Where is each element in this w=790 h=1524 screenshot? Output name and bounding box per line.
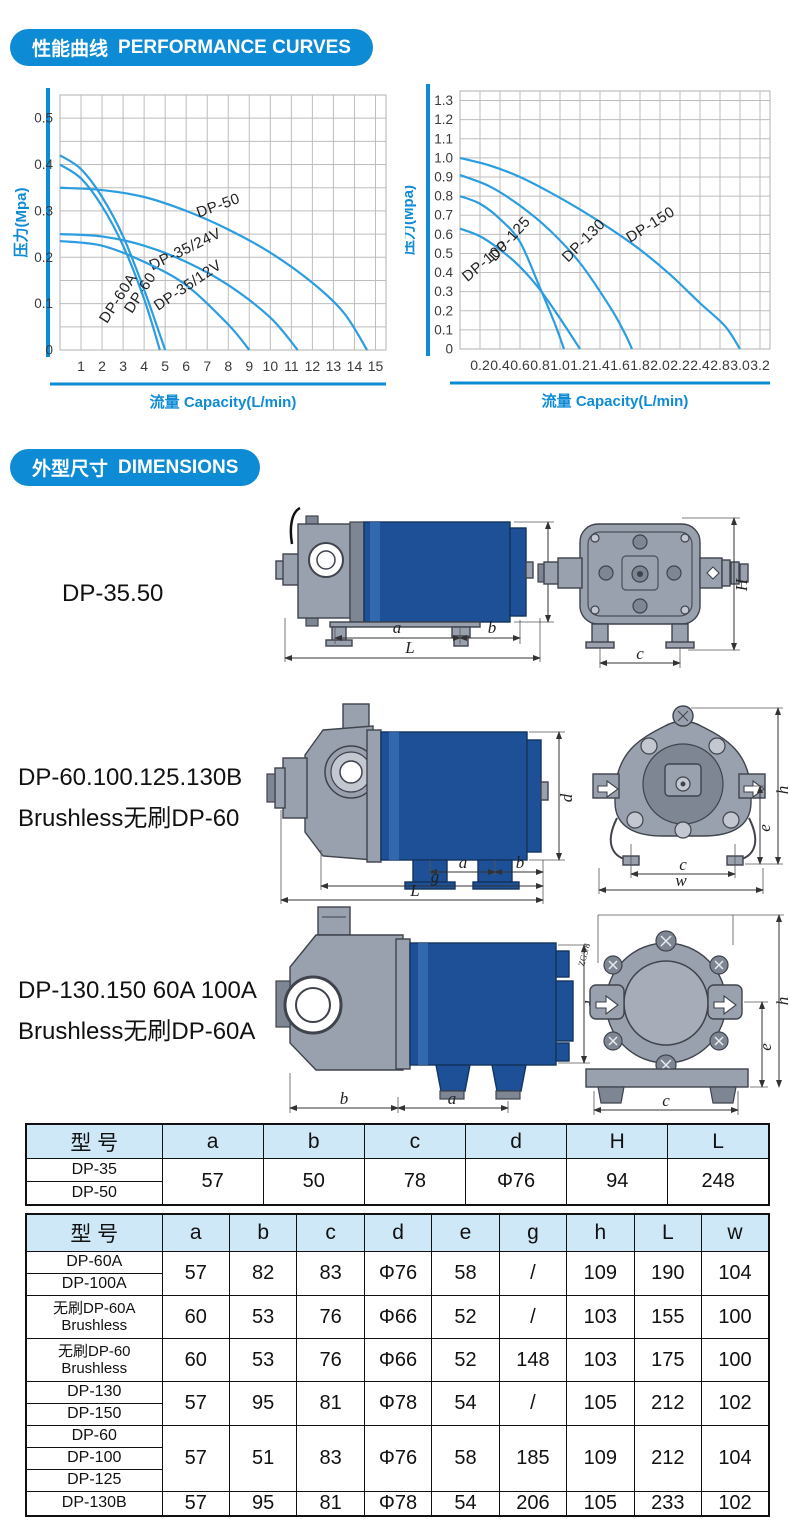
performance-curves-header: 性能曲线 PERFORMANCE CURVES xyxy=(10,29,373,66)
dim-label-c: c xyxy=(662,1091,670,1110)
model-cell: DP-100A xyxy=(26,1274,162,1296)
value-cell: 206 xyxy=(499,1492,566,1517)
x-tick-label: 2.2 xyxy=(670,357,690,373)
value-cell: 175 xyxy=(634,1339,701,1382)
model-cell: 无刷DP-60A Brushless xyxy=(26,1296,162,1339)
dim-label-h: h xyxy=(773,786,790,795)
pump-model-label: DP-60.100.125.130BBrushless无刷DP-60 xyxy=(18,758,242,840)
y-tick-label: 0.3 xyxy=(434,284,453,299)
dim-label-g: g xyxy=(431,867,440,886)
x-tick-label: 8 xyxy=(224,358,232,374)
x-tick-label: 5 xyxy=(161,358,169,374)
column-header: d xyxy=(364,1214,431,1252)
curve-label: DP-130 xyxy=(559,216,609,266)
pump-drawing-side-and-front: d b a ZG3/8 c e h xyxy=(268,905,790,1117)
pump-diagram-dp60-family: DP-60.100.125.130BBrushless无刷DP-60 d a b… xyxy=(0,700,790,910)
pump-model-label: DP-35.50 xyxy=(62,574,163,615)
product-spec-page: { "page":{ "accent_blue":"#0e8bd5", "cur… xyxy=(0,0,790,1518)
motor-body xyxy=(410,943,556,1065)
column-header: w xyxy=(702,1214,770,1252)
dim-label-d: d xyxy=(557,793,576,802)
value-cell: 51 xyxy=(229,1426,296,1492)
x-tick-label: 1.4 xyxy=(590,357,610,373)
x-tick-label: 13 xyxy=(326,358,342,374)
x-tick-label: 0.2 xyxy=(470,357,490,373)
model-cell: DP-100 xyxy=(26,1448,162,1470)
x-axis-title: 流量 Capacity(L/min) xyxy=(150,393,297,411)
y-tick-label: 0.5 xyxy=(34,111,53,126)
x-tick-label: 14 xyxy=(347,358,363,374)
model-cell: DP-35 xyxy=(26,1159,162,1182)
curve-label: DP-100 xyxy=(459,238,511,286)
value-cell: 233 xyxy=(634,1492,701,1517)
mounting-foot xyxy=(436,1065,470,1091)
y-tick-label: 0.8 xyxy=(434,189,453,204)
x-tick-label: 12 xyxy=(305,358,321,374)
value-cell: Φ76 xyxy=(465,1159,566,1206)
x-tick-label: 15 xyxy=(368,358,384,374)
dim-label-e: e xyxy=(755,824,774,832)
value-cell: 82 xyxy=(229,1252,296,1296)
value-cell: / xyxy=(499,1296,566,1339)
x-tick-label: 1.2 xyxy=(570,357,590,373)
value-cell: 57 xyxy=(162,1252,229,1296)
header-title-cn: 性能曲线 xyxy=(32,34,108,61)
value-cell: 109 xyxy=(567,1252,634,1296)
value-cell: 248 xyxy=(668,1159,769,1206)
model-cell: 无刷DP-60 Brushless xyxy=(26,1339,162,1382)
value-cell: 95 xyxy=(229,1492,296,1517)
x-tick-label: 6 xyxy=(182,358,190,374)
dimensions-table-dp35-50: 型 号abcdHLDP-35575078Φ7694248DP-50 xyxy=(25,1123,770,1206)
value-cell: 100 xyxy=(702,1339,770,1382)
y-tick-label: 0.2 xyxy=(434,303,453,318)
y-tick-label: 0 xyxy=(45,343,53,358)
y-tick-label: 0.4 xyxy=(434,265,453,280)
column-header: h xyxy=(567,1214,634,1252)
value-cell: 109 xyxy=(567,1426,634,1492)
x-tick-label: 11 xyxy=(284,358,299,374)
x-tick-label: 1.6 xyxy=(610,357,630,373)
column-header: 型 号 xyxy=(26,1214,162,1252)
value-cell: 52 xyxy=(432,1339,499,1382)
y-tick-label: 1.0 xyxy=(434,150,453,165)
pump-model-label: DP-130.150 60A 100ABrushless无刷DP-60A xyxy=(18,971,257,1053)
pressure-capacity-chart-small-pumps: 压力(Mpa)00.10.20.30.40.512345678910111213… xyxy=(12,75,402,422)
value-cell: 54 xyxy=(432,1382,499,1426)
column-header: H xyxy=(567,1124,668,1159)
model-cell: DP-50 xyxy=(26,1182,162,1206)
value-cell: Φ78 xyxy=(364,1382,431,1426)
value-cell: 53 xyxy=(229,1296,296,1339)
y-tick-label: 0.2 xyxy=(34,250,53,265)
dim-label-H: H xyxy=(732,577,751,592)
pump-diagram-dp130-150-family: DP-130.150 60A 100ABrushless无刷DP-60A d b… xyxy=(0,905,790,1120)
dim-label-c: c xyxy=(636,644,644,663)
y-tick-label: 0.1 xyxy=(34,296,53,311)
y-tick-label: 0.7 xyxy=(434,208,453,223)
x-tick-label: 0.8 xyxy=(530,357,550,373)
value-cell: Φ66 xyxy=(364,1339,431,1382)
column-header: b xyxy=(229,1214,296,1252)
y-axis-title: 压力(Mpa) xyxy=(405,185,417,255)
y-tick-label: 0.5 xyxy=(434,246,453,261)
x-tick-label: 1.0 xyxy=(550,357,570,373)
dimension-tables: 型 号abcdHLDP-35575078Φ7694248DP-50 型 号abc… xyxy=(25,1123,770,1524)
y-tick-label: 1.3 xyxy=(434,93,453,108)
column-header: L xyxy=(668,1124,769,1159)
value-cell: 52 xyxy=(432,1296,499,1339)
value-cell: 81 xyxy=(297,1492,364,1517)
dim-label-L: L xyxy=(404,638,414,657)
x-tick-label: 2.8 xyxy=(710,357,730,373)
y-tick-label: 0.6 xyxy=(434,227,453,242)
value-cell: 212 xyxy=(634,1426,701,1492)
dim-label-L: L xyxy=(409,881,419,900)
value-cell: 100 xyxy=(702,1296,770,1339)
curve-label: DP-150 xyxy=(623,203,678,246)
y-tick-label: 0.9 xyxy=(434,170,453,185)
pump-drawing-side-and-front: d a b g L c w e xyxy=(263,700,790,905)
x-tick-label: 0.6 xyxy=(510,357,530,373)
value-cell: 148 xyxy=(499,1339,566,1382)
motor-body xyxy=(364,522,510,622)
value-cell: 185 xyxy=(499,1426,566,1492)
value-cell: 76 xyxy=(297,1339,364,1382)
value-cell: 104 xyxy=(702,1426,770,1492)
model-cell: DP-60A xyxy=(26,1252,162,1274)
column-header: c xyxy=(364,1124,465,1159)
x-tick-label: 3.0 xyxy=(730,357,750,373)
header-title-en: PERFORMANCE CURVES xyxy=(118,37,351,59)
value-cell: 95 xyxy=(229,1382,296,1426)
value-cell: 105 xyxy=(567,1382,634,1426)
y-tick-label: 0 xyxy=(445,342,453,357)
dimensions-table-dp60-family: 型 号abcdeghLwDP-60A578283Φ7658/109190104D… xyxy=(25,1213,770,1517)
value-cell: 58 xyxy=(432,1252,499,1296)
x-tick-label: 1 xyxy=(77,358,85,374)
value-cell: 60 xyxy=(162,1296,229,1339)
value-cell: 94 xyxy=(567,1159,668,1206)
y-tick-label: 0.3 xyxy=(34,203,53,218)
model-cell: DP-130B xyxy=(26,1492,162,1517)
column-header: 型 号 xyxy=(26,1124,162,1159)
curve-label: DP-50 xyxy=(194,190,242,221)
value-cell: 102 xyxy=(702,1492,770,1517)
dim-label-b: b xyxy=(516,853,525,872)
x-tick-label: 7 xyxy=(203,358,211,374)
model-cell: DP-130 xyxy=(26,1382,162,1404)
y-tick-label: 0.4 xyxy=(34,157,53,172)
column-header: e xyxy=(432,1214,499,1252)
value-cell: 105 xyxy=(567,1492,634,1517)
value-cell: 190 xyxy=(634,1252,701,1296)
value-cell: 83 xyxy=(297,1252,364,1296)
mounting-foot xyxy=(492,1065,526,1091)
column-header: d xyxy=(465,1124,566,1159)
x-tick-label: 0.4 xyxy=(490,357,510,373)
value-cell: 155 xyxy=(634,1296,701,1339)
value-cell: 103 xyxy=(567,1339,634,1382)
pump-head xyxy=(305,726,373,860)
dim-label-w: w xyxy=(675,871,687,890)
pressure-capacity-chart-large-pumps: 压力(Mpa)00.10.20.30.40.50.60.70.80.91.01.… xyxy=(405,53,790,420)
value-cell: 54 xyxy=(432,1492,499,1517)
y-tick-label: 1.1 xyxy=(434,131,453,146)
value-cell: 57 xyxy=(162,1426,229,1492)
value-cell: Φ66 xyxy=(364,1296,431,1339)
value-cell: / xyxy=(499,1382,566,1426)
column-header: L xyxy=(634,1214,701,1252)
x-tick-label: 3.2 xyxy=(750,357,770,373)
model-cell: DP-125 xyxy=(26,1470,162,1492)
value-cell: 212 xyxy=(634,1382,701,1426)
chart-canvas: 压力(Mpa)00.10.20.30.40.50.60.70.80.91.01.… xyxy=(405,53,790,415)
pump-drawing-side-and-front: d a b L c H xyxy=(270,500,790,680)
column-header: a xyxy=(162,1124,263,1159)
column-header: b xyxy=(263,1124,364,1159)
value-cell: 103 xyxy=(567,1296,634,1339)
x-tick-label: 3 xyxy=(119,358,127,374)
value-cell: 58 xyxy=(432,1426,499,1492)
x-tick-label: 2.0 xyxy=(650,357,670,373)
dimensions-header: 外型尺寸 DIMENSIONS xyxy=(10,449,260,486)
value-cell: 60 xyxy=(162,1339,229,1382)
model-cell: DP-150 xyxy=(26,1404,162,1426)
column-header: a xyxy=(162,1214,229,1252)
dim-label-e: e xyxy=(756,1043,775,1051)
x-tick-label: 1.8 xyxy=(630,357,650,373)
value-cell: 81 xyxy=(297,1382,364,1426)
x-tick-label: 10 xyxy=(263,358,279,374)
column-header: g xyxy=(499,1214,566,1252)
value-cell: / xyxy=(499,1252,566,1296)
x-axis-title: 流量 Capacity(L/min) xyxy=(542,392,689,410)
x-tick-label: 4 xyxy=(140,358,148,374)
y-tick-label: 1.2 xyxy=(434,112,453,127)
value-cell: 53 xyxy=(229,1339,296,1382)
value-cell: Φ76 xyxy=(364,1252,431,1296)
value-cell: Φ78 xyxy=(364,1492,431,1517)
inlet-port xyxy=(267,774,275,802)
x-tick-label: 2.4 xyxy=(690,357,710,373)
dim-label-a: a xyxy=(459,853,468,872)
value-cell: 57 xyxy=(162,1492,229,1517)
value-cell: 78 xyxy=(364,1159,465,1206)
value-cell: 102 xyxy=(702,1382,770,1426)
column-header: c xyxy=(297,1214,364,1252)
value-cell: 76 xyxy=(297,1296,364,1339)
chart-canvas: 压力(Mpa)00.10.20.30.40.512345678910111213… xyxy=(12,75,402,417)
dim-label-a: a xyxy=(393,618,402,637)
value-cell: 83 xyxy=(297,1426,364,1492)
value-cell: 50 xyxy=(263,1159,364,1206)
header-title-cn: 外型尺寸 xyxy=(32,454,108,481)
value-cell: 104 xyxy=(702,1252,770,1296)
value-cell: 57 xyxy=(162,1382,229,1426)
header-title-en: DIMENSIONS xyxy=(118,457,238,479)
x-tick-label: 9 xyxy=(245,358,253,374)
y-axis-title: 压力(Mpa) xyxy=(12,188,30,258)
model-cell: DP-60 xyxy=(26,1426,162,1448)
value-cell: Φ76 xyxy=(364,1426,431,1492)
motor-body xyxy=(381,732,527,860)
dim-label-h: h xyxy=(773,997,790,1006)
dim-label-b: b xyxy=(340,1089,349,1108)
thread-size-label: ZG3/8 xyxy=(576,942,592,968)
value-cell: 57 xyxy=(162,1159,263,1206)
base-plate xyxy=(586,1069,748,1087)
dim-label-a: a xyxy=(448,1089,457,1108)
y-tick-label: 0.1 xyxy=(434,322,453,337)
x-tick-label: 2 xyxy=(98,358,106,374)
dim-label-b: b xyxy=(488,618,497,637)
pump-diagram-dp35-50: DP-35.50 d a b L xyxy=(0,500,790,700)
